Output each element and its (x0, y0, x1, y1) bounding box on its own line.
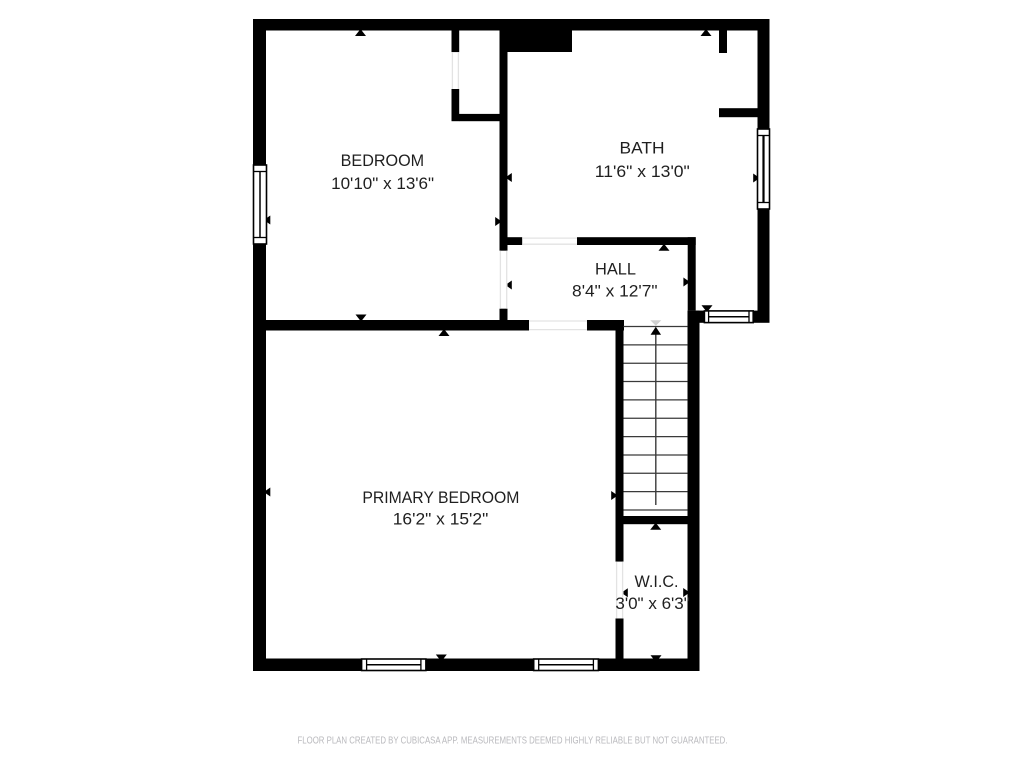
svg-text:BATH: BATH (620, 139, 665, 157)
svg-text:FLOOR PLAN CREATED BY CUBICASA: FLOOR PLAN CREATED BY CUBICASA APP. MEAS… (298, 736, 728, 747)
svg-text:3'0" x 6'3": 3'0" x 6'3" (615, 595, 690, 613)
svg-text:PRIMARY BEDROOM: PRIMARY BEDROOM (362, 489, 519, 507)
svg-text:10'10" x 13'6": 10'10" x 13'6" (331, 175, 434, 193)
svg-text:11'6" x 13'0": 11'6" x 13'0" (595, 163, 690, 181)
svg-text:BEDROOM: BEDROOM (341, 152, 425, 170)
svg-text:16'2" x 15'2": 16'2" x 15'2" (393, 510, 489, 528)
svg-text:HALL: HALL (595, 261, 636, 279)
svg-text:W.I.C.: W.I.C. (635, 573, 679, 591)
svg-text:8'4" x 12'7": 8'4" x 12'7" (572, 283, 658, 301)
